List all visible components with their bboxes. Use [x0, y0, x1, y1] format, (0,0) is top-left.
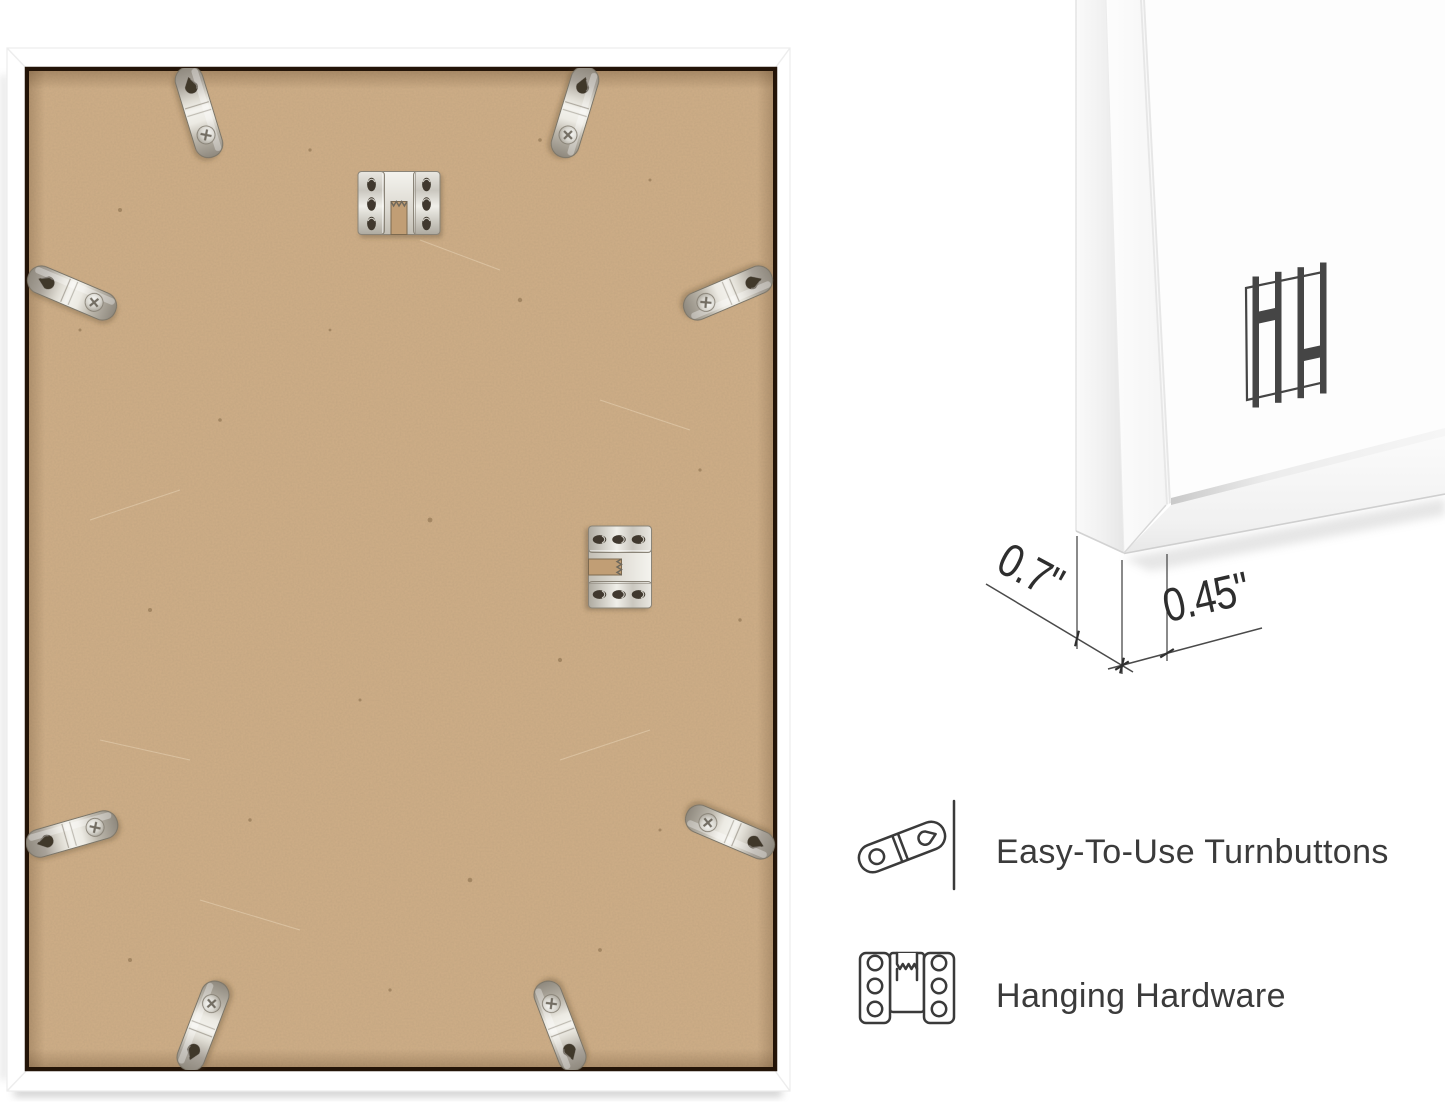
turnbutton-icon	[855, 795, 959, 895]
page-background: 0.7" 0.45" Easy-To-Use Turnbuttons	[0, 0, 1445, 1114]
mat-board	[1144, 0, 1445, 500]
hanging-hardware-top	[358, 172, 440, 235]
feature-label: Easy-To-Use Turnbuttons	[996, 833, 1389, 872]
dimension-label-face: 0.45"	[1158, 563, 1254, 633]
feature-label: Hanging Hardware	[996, 977, 1286, 1016]
dimension-line-face	[1108, 628, 1262, 669]
hanging-hardware-middle	[589, 526, 652, 608]
hanging-hardware-icon	[855, 950, 959, 1034]
dimension-label-depth: 0.7"	[989, 534, 1071, 611]
dimension-line-depth	[986, 584, 1133, 672]
frame-corner-detail: 0.7" 0.45"	[930, 0, 1445, 730]
feature-turnbuttons: Easy-To-Use Turnbuttons	[855, 795, 1415, 900]
feature-hanging-hardware: Hanging Hardware	[855, 950, 1415, 1040]
frame-back-photo	[0, 0, 800, 1114]
